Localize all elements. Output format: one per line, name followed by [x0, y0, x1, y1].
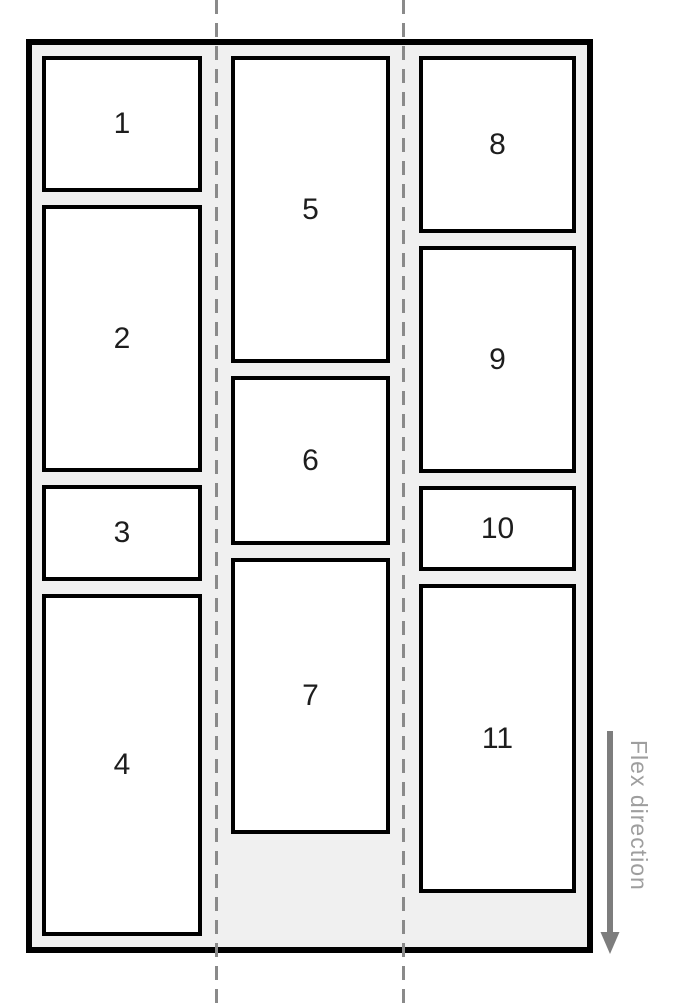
flex-item-number: 7 — [302, 681, 319, 711]
flex-item-number: 10 — [481, 514, 514, 544]
flex-item-5: 5 — [231, 56, 390, 363]
flex-item-number: 3 — [114, 518, 131, 548]
flex-item-10: 10 — [419, 486, 576, 571]
diagram-canvas: 1234567891011 Flex direction — [0, 0, 674, 1007]
flex-item-number: 6 — [302, 446, 319, 476]
flex-direction-label: Flex direction — [625, 740, 652, 891]
flex-column-2: 567 — [231, 56, 390, 834]
flex-column-1: 1234 — [42, 56, 202, 936]
flex-item-number: 2 — [114, 324, 131, 354]
flex-direction-arrow-icon — [601, 731, 620, 954]
flex-item-7: 7 — [231, 558, 390, 834]
flex-item-number: 1 — [114, 109, 131, 139]
flex-item-number: 4 — [114, 750, 131, 780]
flex-item-2: 2 — [42, 205, 202, 472]
flex-item-4: 4 — [42, 594, 202, 936]
flex-item-6: 6 — [231, 376, 390, 545]
flex-item-1: 1 — [42, 56, 202, 192]
flex-item-8: 8 — [419, 56, 576, 233]
flex-item-number: 11 — [482, 724, 513, 754]
flex-item-number: 9 — [489, 345, 506, 375]
flex-item-9: 9 — [419, 246, 576, 473]
flex-item-11: 11 — [419, 584, 576, 893]
flex-item-number: 8 — [489, 130, 506, 160]
flex-item-number: 5 — [302, 195, 319, 225]
flex-column-3: 891011 — [419, 56, 576, 893]
flex-item-3: 3 — [42, 485, 202, 581]
flex-container: 1234567891011 — [26, 39, 593, 953]
arrow-head — [601, 932, 620, 954]
